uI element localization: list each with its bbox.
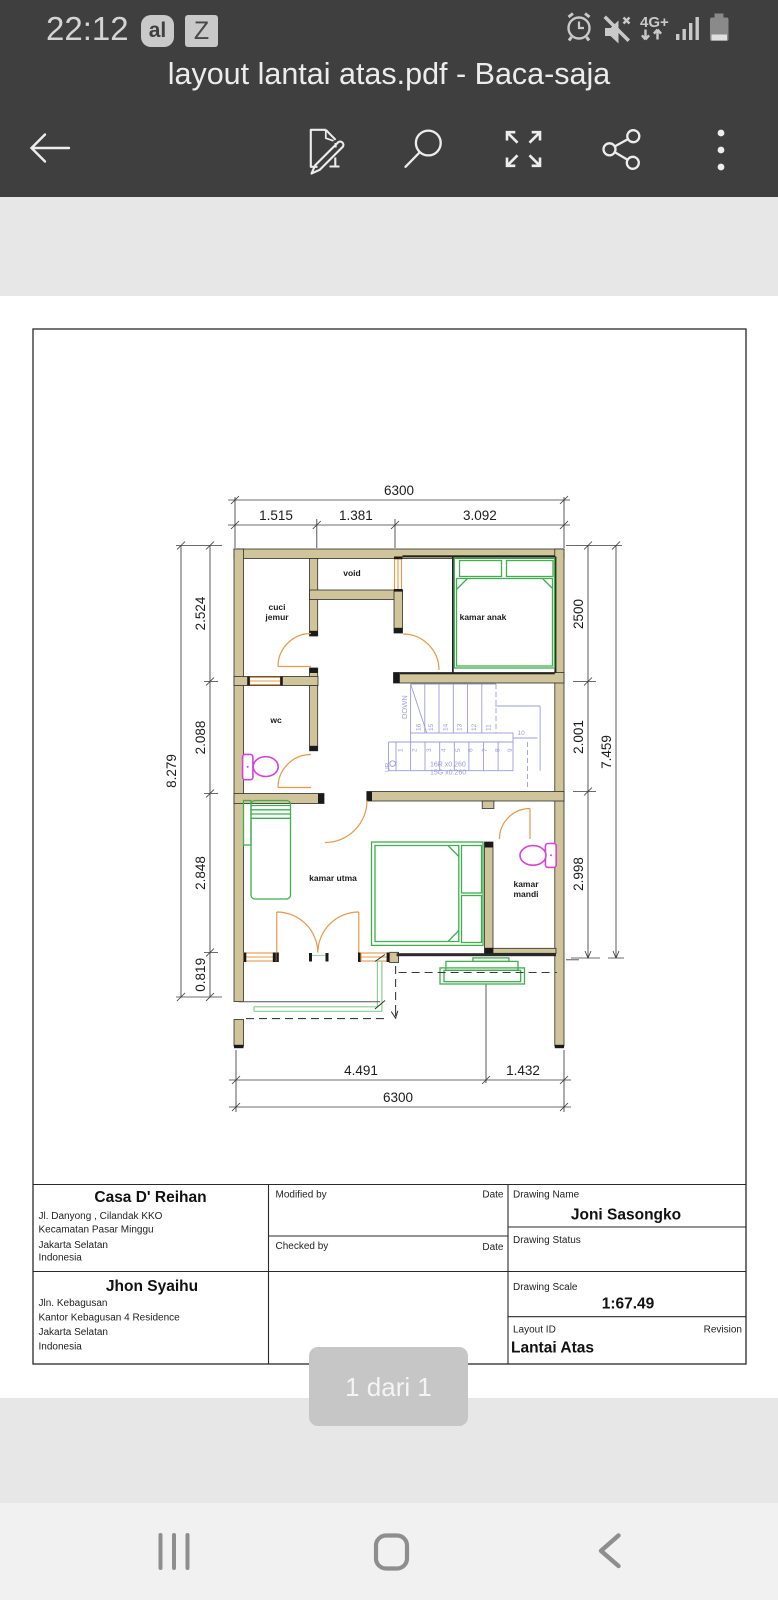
svg-text:6300: 6300	[383, 1090, 413, 1105]
svg-text:15G x0.260: 15G x0.260	[430, 770, 466, 777]
svg-text:jemur: jemur	[264, 612, 289, 622]
svg-text:Jakarta Selatan: Jakarta Selatan	[39, 1327, 109, 1338]
svg-text:6: 6	[468, 748, 475, 752]
svg-text:8.279: 8.279	[164, 754, 179, 788]
svg-text:2.848: 2.848	[193, 856, 208, 890]
svg-text:Jln. Kebagusan: Jln. Kebagusan	[39, 1298, 108, 1309]
svg-text:Joni Sasongko: Joni Sasongko	[571, 1207, 681, 1224]
svg-text:Indonesia: Indonesia	[39, 1342, 83, 1353]
svg-text:kamar utma: kamar utma	[309, 873, 357, 883]
svg-text:Date: Date	[482, 1190, 504, 1201]
svg-text:1: 1	[397, 748, 404, 752]
svg-text:2.088: 2.088	[193, 721, 208, 755]
svg-text:Jl. Danyong , Cilandak KKO: Jl. Danyong , Cilandak KKO	[39, 1211, 163, 1222]
svg-text:Kecamatan Pasar Minggu: Kecamatan Pasar Minggu	[39, 1225, 154, 1236]
svg-text:Jakarta Selatan: Jakarta Selatan	[39, 1240, 109, 1251]
svg-text:2.001: 2.001	[571, 720, 586, 754]
svg-text:cuci: cuci	[268, 602, 285, 612]
svg-text:3.092: 3.092	[463, 508, 497, 523]
svg-text:Revision: Revision	[704, 1325, 742, 1336]
svg-text:15: 15	[428, 723, 435, 731]
svg-text:2.524: 2.524	[193, 596, 208, 630]
svg-text:Kantor Kebagusan 4 Residence: Kantor Kebagusan 4 Residence	[39, 1313, 181, 1324]
svg-text:3: 3	[426, 748, 433, 752]
svg-text:0.819: 0.819	[193, 958, 208, 992]
svg-text:Indonesia: Indonesia	[39, 1253, 83, 1264]
svg-text:Drawing Name: Drawing Name	[513, 1190, 580, 1201]
svg-text:13: 13	[457, 723, 464, 731]
svg-text:mandi: mandi	[513, 889, 538, 899]
svg-text:12: 12	[471, 723, 478, 731]
svg-text:Drawing Scale: Drawing Scale	[513, 1282, 578, 1293]
svg-text:4G+: 4G+	[640, 14, 669, 31]
svg-text:10: 10	[518, 730, 526, 737]
svg-text:Drawing Status: Drawing Status	[513, 1235, 581, 1246]
svg-text:1.381: 1.381	[339, 508, 373, 523]
svg-text:1.515: 1.515	[259, 508, 293, 523]
svg-text:Lantai Atas: Lantai Atas	[511, 1340, 594, 1357]
svg-text:2500: 2500	[571, 599, 586, 629]
svg-text:11: 11	[486, 724, 493, 731]
svg-text:2: 2	[412, 748, 419, 752]
svg-text:9: 9	[507, 748, 514, 752]
svg-text:Modified by: Modified by	[276, 1190, 327, 1201]
svg-text:7.459: 7.459	[599, 735, 614, 769]
svg-text:kamar: kamar	[513, 879, 539, 889]
svg-text:void: void	[343, 568, 360, 578]
svg-text:16: 16	[415, 723, 422, 731]
svg-text:4: 4	[441, 748, 448, 752]
svg-text:DOWN: DOWN	[400, 695, 409, 719]
svg-text:2.998: 2.998	[571, 857, 586, 891]
svg-text:Checked by: Checked by	[276, 1241, 329, 1252]
svg-text:1.432: 1.432	[506, 1063, 540, 1078]
svg-text:wc: wc	[269, 715, 282, 725]
svg-text:1:67.49: 1:67.49	[602, 1296, 655, 1313]
svg-text:16R x0.260: 16R x0.260	[430, 762, 466, 769]
svg-text:Layout ID: Layout ID	[513, 1325, 556, 1336]
svg-text:4.491: 4.491	[344, 1063, 378, 1078]
svg-text:14: 14	[442, 723, 449, 731]
svg-text:6300: 6300	[384, 483, 414, 498]
svg-text:Jhon Syaihu: Jhon Syaihu	[106, 1278, 198, 1295]
svg-text:kamar anak: kamar anak	[460, 612, 507, 622]
svg-text:Date: Date	[482, 1242, 504, 1253]
svg-text:Casa D' Reihan: Casa D' Reihan	[94, 1189, 206, 1206]
svg-text:UP: UP	[385, 763, 392, 772]
svg-text:7: 7	[482, 748, 489, 752]
svg-text:8: 8	[495, 748, 502, 752]
svg-text:5: 5	[455, 748, 462, 752]
